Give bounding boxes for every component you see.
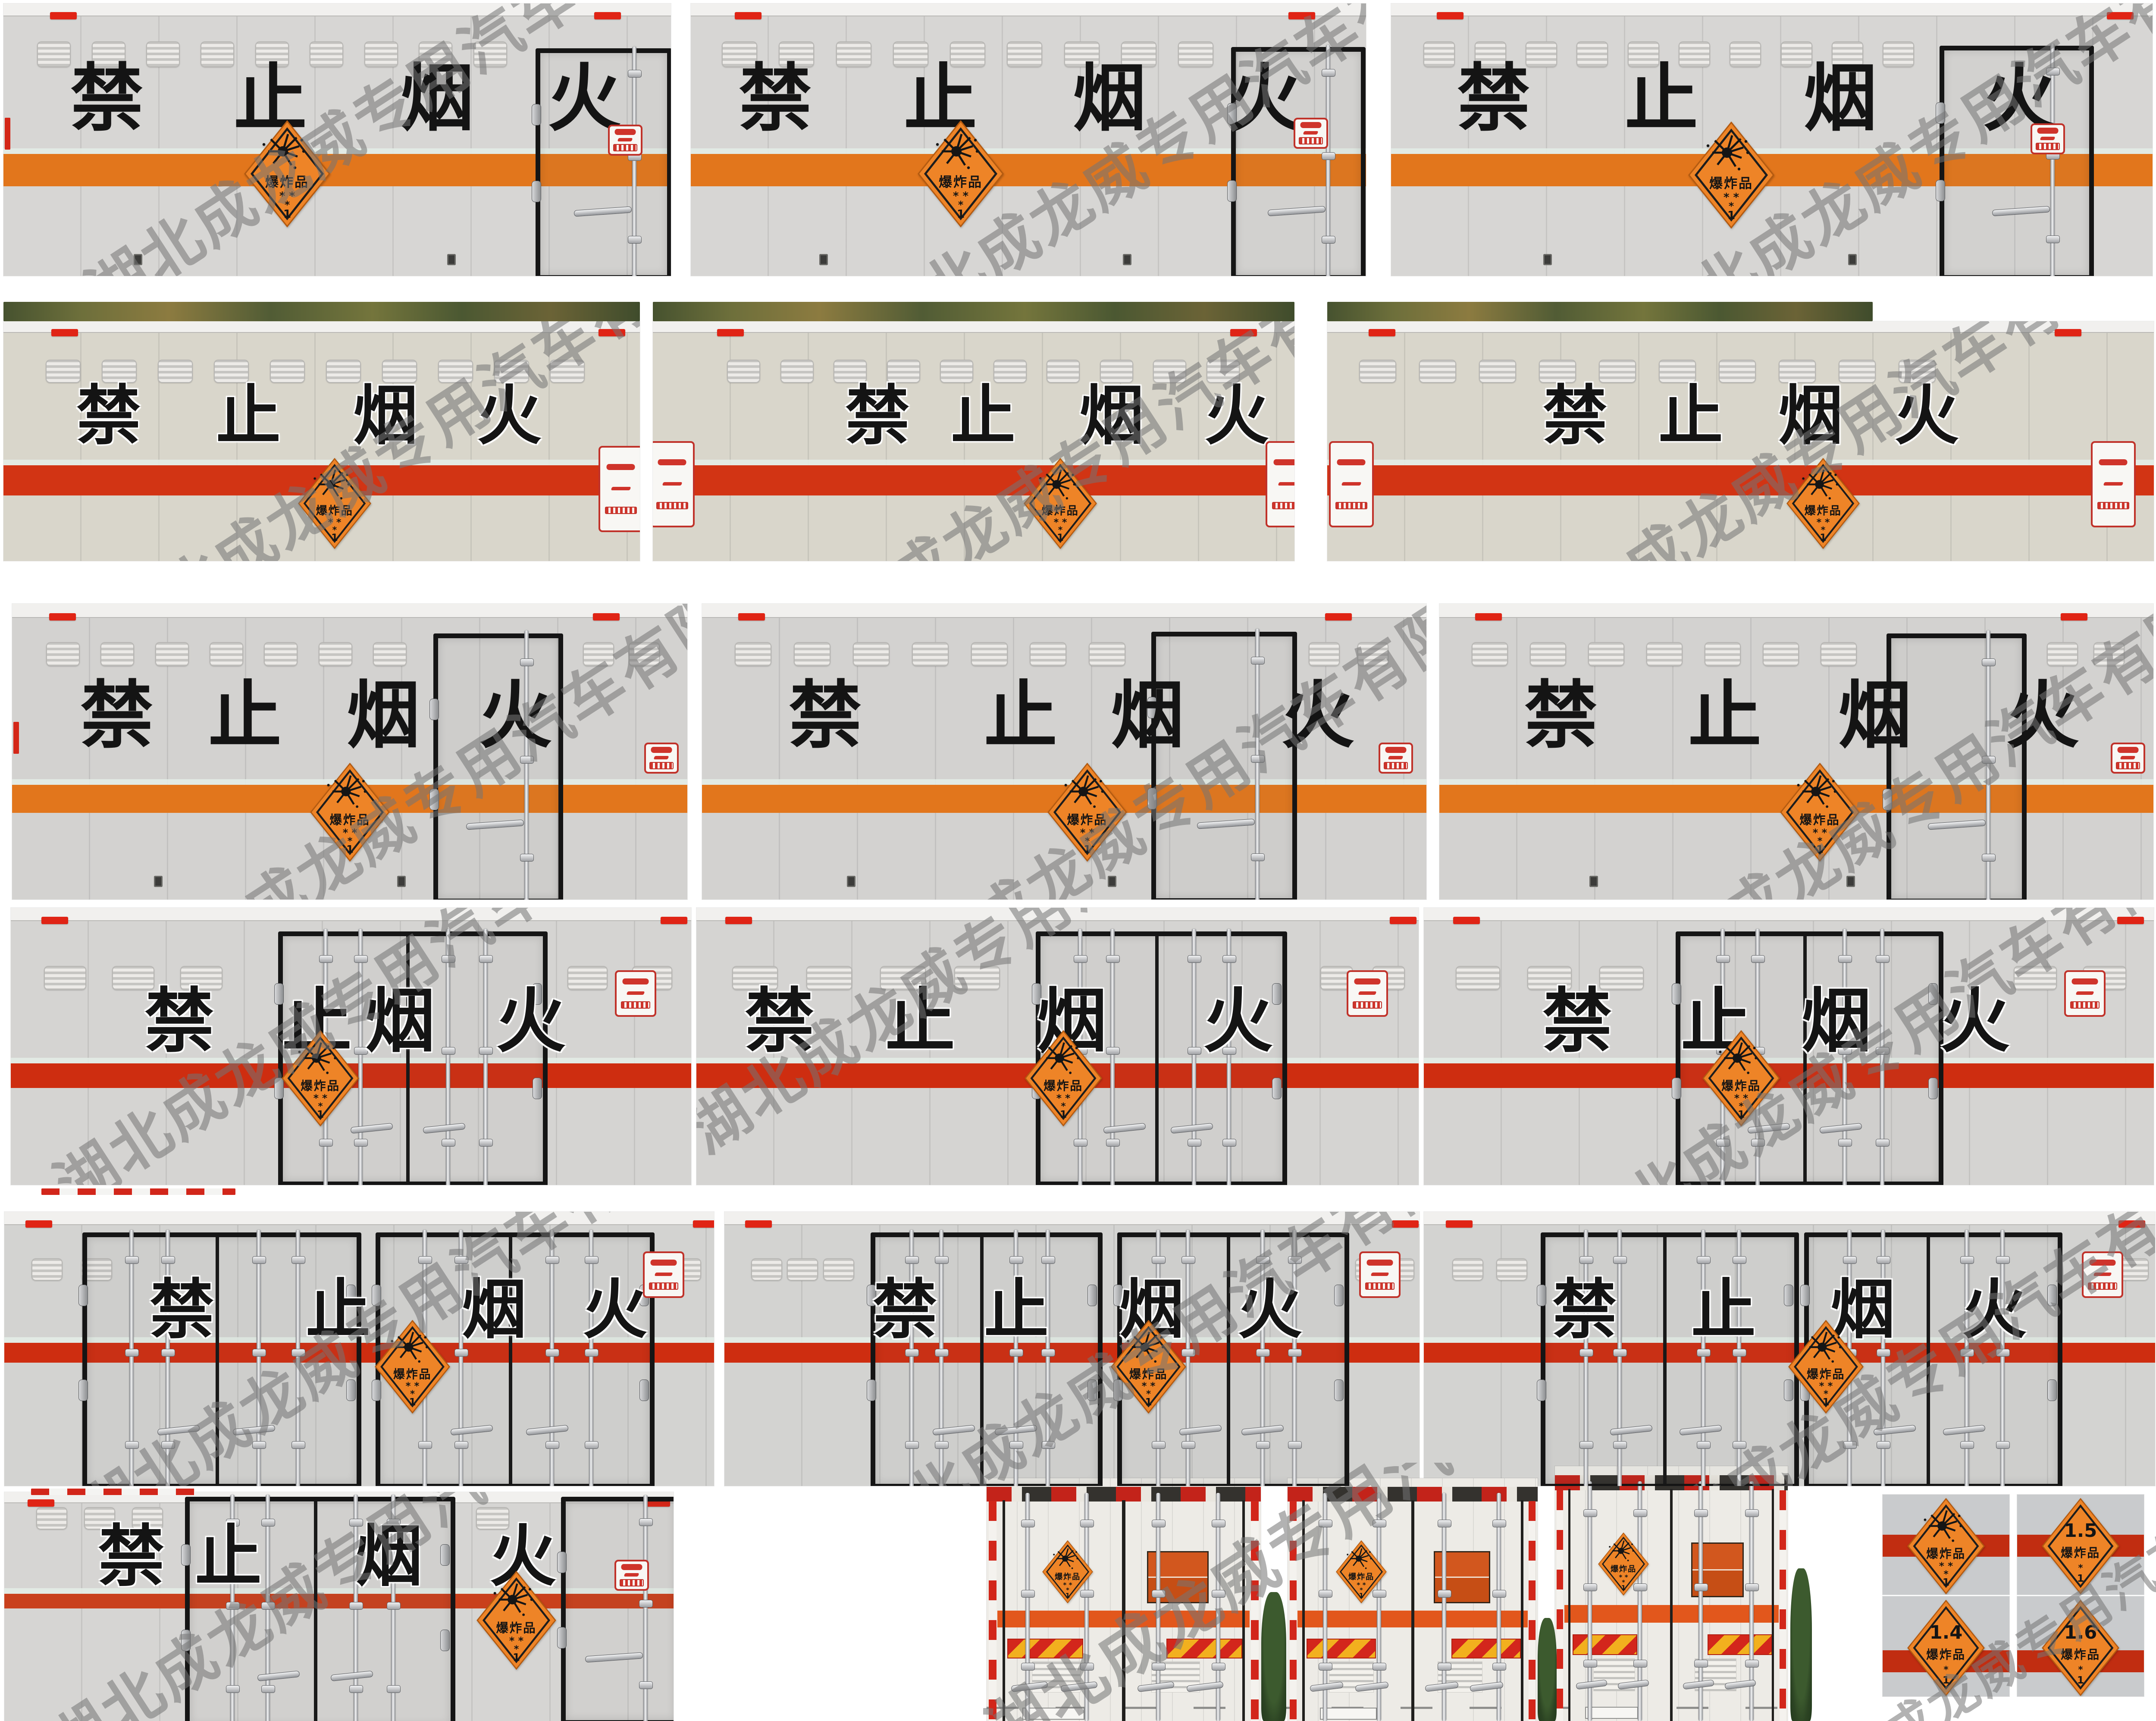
door-frame-line — [1568, 1489, 1570, 1721]
louver-vent — [583, 642, 614, 666]
rod-keeper-bracket — [935, 1256, 949, 1264]
edge-reflective-tape — [1251, 1501, 1259, 1721]
marker-light — [717, 329, 744, 336]
rod-keeper-bracket — [1080, 1520, 1094, 1527]
door-handle — [1943, 1425, 1985, 1436]
placard-sample: 1.6爆炸品*1 — [2017, 1596, 2144, 1696]
floor-latch — [1846, 876, 1855, 887]
explosive-placard: 爆炸品* **1 — [476, 1571, 556, 1670]
explosive-placard: 爆炸品* **1 — [1598, 1533, 1649, 1596]
no-fire-text-char: 止 — [216, 384, 281, 448]
rod-keeper-bracket — [1373, 1520, 1386, 1527]
placard-text: 1 — [2077, 1572, 2084, 1584]
placard-text: 1 — [1823, 1397, 1830, 1408]
door-hinge — [1800, 1285, 1810, 1306]
hazard-stripe — [653, 465, 1294, 495]
brand-logo-icon — [2116, 747, 2140, 753]
rod-keeper-bracket — [1212, 1520, 1225, 1527]
reflective-tape — [31, 1489, 195, 1495]
rod-keeper-bracket — [349, 1685, 363, 1693]
explosive-placard-svg: 爆炸品* **1 — [298, 458, 371, 549]
door-hinge — [1272, 1078, 1282, 1099]
placard-text: 1 — [1145, 1397, 1152, 1408]
no-fire-text-char: 烟 — [365, 987, 435, 1056]
brand-logo-icon — [624, 1573, 639, 1577]
placard-text: 1 — [331, 532, 338, 543]
no-fire-text-char: 禁 — [144, 987, 214, 1056]
door-hinge — [78, 1285, 88, 1306]
explosive-placard-svg: 爆炸品* **1 — [310, 763, 390, 862]
rod-keeper-bracket — [1322, 69, 1335, 77]
rod-keeper-bracket — [628, 236, 642, 244]
door-hinge — [639, 1379, 649, 1401]
brand-badge — [644, 743, 679, 774]
brand-emblem-icon — [1335, 502, 1367, 509]
door-handle — [526, 1425, 568, 1436]
brand-emblem-icon — [2036, 143, 2060, 150]
rod-keeper-bracket — [1716, 1139, 1730, 1147]
no-fire-text-char: 止 — [984, 679, 1057, 752]
louver-vent — [100, 642, 134, 666]
rod-keeper-bracket — [585, 1256, 599, 1264]
cargo-door — [561, 1497, 674, 1721]
floor-latch — [154, 876, 163, 887]
placard-text: 1 — [283, 208, 291, 221]
no-fire-text-char: 禁 — [76, 384, 141, 448]
brand-badge — [615, 970, 656, 1017]
truck-box-panel: 禁止烟火爆炸品* **1湖北成龙威专用汽车有限公司 — [1424, 908, 2154, 1185]
explosive-placard-svg: 爆炸品* **1 — [1688, 122, 1774, 229]
explosive-placard: 爆炸品* **1 — [1025, 1030, 1102, 1126]
louver-vent — [629, 642, 660, 666]
louver-vent — [794, 642, 830, 666]
explosive-placard: 爆炸品* **1 — [1111, 1320, 1186, 1414]
louver-vent — [201, 41, 234, 67]
brand-emblem-icon — [656, 502, 688, 509]
placard-text: 1 — [957, 208, 965, 221]
rod-keeper-bracket — [1982, 658, 1996, 666]
rod-keeper-bracket — [1106, 1139, 1120, 1147]
rod-keeper-bracket — [935, 1441, 949, 1449]
door-frame-line — [1122, 1500, 1125, 1721]
louver-vent — [373, 642, 407, 666]
no-fire-text-char: 止 — [195, 1523, 262, 1590]
no-fire-text-char: 禁 — [1542, 987, 1612, 1056]
rod-keeper-bracket — [226, 1602, 240, 1610]
louver-vent — [37, 41, 71, 67]
door-hinge — [867, 1379, 876, 1401]
brand-logo-icon — [1341, 482, 1362, 486]
placard-text: 爆炸品 — [1055, 1572, 1081, 1582]
brand-logo-icon — [611, 487, 631, 490]
rod-keeper-bracket — [1021, 1520, 1035, 1527]
placard-text: 1 — [346, 843, 354, 856]
placard-text: 1 — [1943, 1674, 1949, 1686]
explosive-placard: 爆炸品* **1 — [1907, 1498, 1985, 1594]
rod-keeper-bracket — [545, 1349, 559, 1357]
rod-keeper-bracket — [1152, 1520, 1166, 1527]
door-hinge — [1147, 788, 1157, 809]
louver-vent — [1472, 642, 1508, 666]
rod-keeper-bracket — [1188, 1047, 1201, 1055]
rod-keeper-bracket — [442, 1139, 455, 1147]
rod-keeper-bracket — [387, 1602, 401, 1610]
rod-keeper-bracket — [1876, 1047, 1890, 1055]
door-hinge — [1936, 102, 1945, 124]
rod-keeper-bracket — [1877, 1256, 1890, 1264]
rod-keeper-bracket — [1373, 1663, 1386, 1671]
placard-sample: 爆炸品* **1 — [1883, 1495, 2009, 1595]
truck-box-panel: 禁止烟火爆炸品* **1湖北成龙威专用汽车有限公司 — [1327, 321, 2154, 561]
louver-vent — [1030, 642, 1066, 666]
brand-logo-icon — [1388, 756, 1404, 759]
rod-keeper-bracket — [1438, 1663, 1451, 1671]
floor-latch — [847, 876, 856, 887]
placard-text: 1 — [1060, 1108, 1067, 1120]
floor-latch — [1123, 254, 1131, 265]
no-fire-text-char: 烟 — [1111, 679, 1184, 752]
cargo-door — [82, 1232, 361, 1486]
no-fire-text-char: 烟 — [462, 1278, 526, 1342]
placard-text: 爆炸品 — [301, 1078, 340, 1093]
louver-vent — [46, 360, 81, 383]
brand-logo-icon — [605, 464, 636, 470]
door-hinge — [181, 1544, 191, 1566]
brand-emblem-icon — [605, 507, 636, 514]
truck-rear-view: 爆炸品* **1 — [987, 1478, 1261, 1721]
brand-badge — [1329, 441, 1374, 527]
placard-text: 爆炸品 — [496, 1621, 536, 1635]
door-handle — [1873, 1425, 1916, 1436]
louver-vent — [1419, 360, 1456, 383]
roof-edge — [1439, 604, 2153, 618]
brand-logo-icon — [1299, 122, 1323, 128]
louver-vent — [438, 360, 473, 383]
no-fire-text-char: 止 — [1691, 1278, 1756, 1342]
rod-keeper-bracket — [1009, 1441, 1023, 1449]
brand-badge — [2064, 970, 2106, 1017]
ground-line — [987, 1707, 1789, 1709]
placard-text: 1.5 — [2064, 1520, 2097, 1542]
louver-vent — [1646, 642, 1683, 666]
rod-keeper-bracket — [1041, 1441, 1055, 1449]
rod-keeper-bracket — [520, 658, 534, 666]
louver-vent — [1588, 642, 1624, 666]
explosive-placard: 爆炸品* **1 — [310, 763, 390, 862]
door-handle — [1819, 1123, 1862, 1134]
explosive-placard-svg: 爆炸品* **1 — [918, 120, 1004, 227]
no-fire-text-char: 火 — [583, 1278, 647, 1342]
marker-light — [28, 1499, 54, 1507]
truck-box-panel: 禁止烟火爆炸品* **1湖北成龙威专用汽车有限公司 — [653, 321, 1294, 561]
no-fire-text-char: 火 — [1940, 987, 2010, 1056]
placard-text: 1 — [1057, 532, 1063, 543]
no-fire-text-char: 火 — [479, 679, 552, 752]
rod-keeper-bracket — [1106, 955, 1120, 963]
cargo-door — [871, 1232, 1103, 1486]
brand-emblem-icon — [2088, 1282, 2117, 1290]
no-fire-text-char: 禁 — [845, 384, 910, 448]
brand-logo-icon — [620, 1564, 644, 1570]
rod-keeper-bracket — [1438, 1590, 1451, 1598]
louver-vent — [1763, 642, 1799, 666]
roof-edge — [4, 1212, 714, 1225]
marker-light — [50, 12, 77, 19]
louver-vent — [1576, 41, 1608, 67]
louver-vent — [1719, 360, 1756, 383]
rod-keeper-bracket — [545, 1256, 559, 1264]
marker-light — [725, 917, 752, 924]
rod-keeper-bracket — [1579, 1441, 1593, 1449]
rod-keeper-bracket — [905, 1256, 919, 1264]
door-split-line — [1927, 1237, 1930, 1484]
louver-vent — [954, 966, 1000, 990]
roof-edge — [696, 908, 1419, 921]
brand-logo-icon — [1366, 1260, 1394, 1266]
brand-badge — [2031, 123, 2065, 154]
door-frame-line — [1670, 1489, 1673, 1721]
no-fire-text-char: 烟 — [401, 62, 474, 135]
rod-keeper-bracket — [520, 854, 534, 862]
no-fire-text-char: 禁 — [1524, 679, 1598, 752]
rod-keeper-bracket — [1438, 1520, 1451, 1527]
door-handle — [1679, 1425, 1722, 1436]
rod-keeper-bracket — [1583, 1660, 1597, 1668]
brand-logo-icon — [617, 138, 633, 141]
no-fire-text-char: 烟 — [356, 1523, 423, 1590]
rod-keeper-bracket — [1996, 1441, 2010, 1449]
door-hinge — [1537, 1379, 1546, 1401]
rear-views-group: 爆炸品* **1爆炸品* **1爆炸品* **1湖北成龙威专用汽车有限公司 — [983, 1463, 1815, 1721]
door-split-line — [1227, 1237, 1230, 1484]
rod-keeper-bracket — [1579, 1349, 1593, 1357]
brand-logo-icon — [1370, 1273, 1389, 1276]
rod-keeper-bracket — [161, 1349, 175, 1357]
brand-logo-icon — [2036, 128, 2060, 134]
rod-keeper-bracket — [418, 1441, 432, 1449]
explosive-placard-svg: 1.4爆炸品*1 — [1907, 1600, 1985, 1696]
floor-latch — [1543, 254, 1552, 265]
explosive-placard: 爆炸品* **1 — [1336, 1540, 1387, 1603]
marker-light — [2118, 1220, 2145, 1228]
placard-text: 爆炸品 — [1067, 812, 1107, 827]
explosive-placard: 爆炸品* **1 — [244, 120, 330, 227]
door-hinge — [2047, 1285, 2057, 1306]
placard-text: 爆炸品 — [1926, 1546, 1966, 1561]
floor-latch — [819, 254, 828, 265]
louver-vent — [1452, 1258, 1483, 1281]
door-hinge — [1087, 1285, 1097, 1306]
door-hinge — [181, 1630, 191, 1651]
door-hinge — [532, 181, 541, 202]
door-hinge — [440, 1630, 450, 1651]
brand-emblem-icon — [613, 144, 637, 151]
door-hinge — [1672, 1078, 1681, 1099]
floor-latch — [1589, 876, 1598, 887]
placard-text: 爆炸品 — [1721, 1078, 1761, 1093]
truck-box-panel: 禁止烟火爆炸品* **1湖北成龙威专用汽车有限公司 — [4, 1212, 714, 1486]
no-fire-text-char: 禁 — [1552, 1278, 1617, 1342]
rod-keeper-bracket — [1716, 955, 1730, 963]
shrub — [1538, 1618, 1557, 1721]
no-fire-text-char: 烟 — [1838, 679, 1912, 752]
louver-vent — [780, 360, 814, 383]
rod-keeper-bracket — [442, 1047, 455, 1055]
louver-vent — [473, 41, 507, 67]
door-hinge — [532, 104, 541, 125]
photo-collage-page: 禁止烟火爆炸品* **1湖北成龙威专用汽车有限公司禁止烟火爆炸品* **1湖北成… — [0, 0, 2156, 1721]
door-hinge — [1334, 1379, 1344, 1401]
truck-box-panel: 禁止烟火爆炸品* **1湖北成龙威专用汽车有限公司 — [3, 3, 671, 276]
door-hinge — [533, 1078, 542, 1099]
door-handle — [257, 1671, 300, 1681]
placard-text: 爆炸品 — [1042, 505, 1079, 517]
rod-keeper-bracket — [1745, 1509, 1759, 1517]
rod-keeper-bracket — [1074, 1139, 1087, 1147]
rod-keeper-bracket — [585, 1441, 599, 1449]
no-fire-text-char: 止 — [1625, 62, 1698, 135]
brand-logo-icon — [1278, 482, 1294, 486]
brand-logo-icon — [649, 1260, 678, 1266]
truck-rear-view: 爆炸品* **1 — [1555, 1466, 1788, 1721]
rod-keeper-bracket — [349, 1602, 363, 1610]
explosive-placard: 1.4爆炸品*1 — [1907, 1600, 1985, 1696]
rod-keeper-bracket — [1074, 955, 1087, 963]
rod-keeper-bracket — [628, 70, 642, 78]
chevron-marking — [1573, 1634, 1637, 1655]
rod-keeper-bracket — [1288, 1441, 1302, 1449]
placard-text: 爆炸品 — [1044, 1078, 1083, 1093]
rod-keeper-bracket — [125, 1349, 139, 1357]
rod-keeper-bracket — [1212, 1590, 1225, 1598]
floor-latch — [1108, 876, 1116, 887]
rod-keeper-bracket — [1982, 756, 1996, 764]
door-hinge — [346, 1379, 356, 1401]
rod-keeper-bracket — [252, 1441, 266, 1449]
door-hinge — [440, 1544, 450, 1566]
marker-light — [49, 613, 76, 621]
placard-text: 爆炸品 — [1799, 812, 1840, 827]
no-fire-text-char: 烟 — [347, 679, 420, 752]
placard-text: 爆炸品 — [2061, 1546, 2100, 1560]
door-handle — [450, 1425, 493, 1436]
trees-background — [1327, 302, 1873, 321]
marker-light — [1453, 917, 1480, 924]
rod-keeper-bracket — [354, 1139, 368, 1147]
louver-vent — [550, 360, 585, 383]
rod-keeper-bracket — [1838, 1139, 1852, 1147]
truck-box-panel: 禁止烟火爆炸品* **1湖北成龙威专用汽车有限公司 — [4, 1492, 674, 1721]
explosive-placard: 爆炸品* **1 — [1780, 763, 1860, 862]
rod-keeper-bracket — [1843, 1441, 1857, 1449]
rod-keeper-bracket — [161, 1441, 175, 1449]
door-handle — [585, 1652, 643, 1662]
brand-logo-icon — [2103, 482, 2124, 486]
explosive-placard-svg: 爆炸品* **1 — [282, 1030, 359, 1126]
truck-rear-view: 爆炸品* **1 — [1288, 1478, 1538, 1721]
louver-vent — [158, 360, 193, 383]
rod-keeper-bracket — [1009, 1349, 1023, 1357]
louver-vent — [1730, 41, 1761, 67]
rod-keeper-bracket — [479, 1139, 493, 1147]
rod-keeper-bracket — [418, 1256, 432, 1264]
rod-keeper-bracket — [1492, 1590, 1506, 1598]
truck-box-panel: 禁止烟火爆炸品* **1湖北成龙威专用汽车有限公司 — [12, 604, 687, 900]
door-hinge — [372, 1285, 381, 1306]
rod-keeper-bracket — [1322, 152, 1335, 160]
roof-edge — [11, 908, 691, 921]
rod-keeper-bracket — [1222, 1139, 1236, 1147]
brand-badge — [599, 446, 640, 532]
marker-light — [594, 12, 621, 19]
rod-keeper-bracket — [1319, 1520, 1332, 1527]
placard-text: 1.4 — [1930, 1622, 1962, 1643]
explosive-placard: 爆炸品* **1 — [282, 1030, 359, 1126]
brand-badge — [1359, 1251, 1401, 1298]
explosive-placard-svg: 1.5爆炸品*1 — [2042, 1498, 2119, 1594]
brand-emblem-icon — [649, 762, 674, 769]
louver-vent — [31, 1258, 63, 1281]
louver-vent — [1089, 642, 1125, 666]
door-handle — [1268, 206, 1326, 216]
rod-keeper-bracket — [1745, 1660, 1759, 1668]
placard-text: 爆炸品 — [393, 1368, 432, 1381]
placard-text: 爆炸品 — [1129, 1368, 1168, 1381]
rod-keeper-bracket — [1322, 236, 1335, 244]
truck-box-panel: 禁止烟火爆炸品* **1湖北成龙威专用汽车有限公司 — [3, 321, 640, 561]
placard-text: 爆炸品 — [316, 505, 354, 517]
marker-light — [1475, 613, 1502, 621]
rod-keeper-bracket — [479, 955, 493, 963]
door-hinge — [1883, 789, 1892, 810]
floor-latch — [447, 254, 456, 265]
marker-light — [1390, 917, 1416, 924]
louver-vent — [853, 642, 890, 666]
marker-light — [1392, 1220, 1419, 1228]
brand-emblem-icon — [1272, 502, 1294, 509]
rod-keeper-bracket — [1745, 1583, 1759, 1591]
brand-badge — [2082, 1251, 2123, 1298]
roof-edge — [1327, 321, 2154, 333]
no-fire-text-char: 火 — [477, 384, 542, 448]
louver-vent — [36, 1507, 67, 1530]
door-handle — [1928, 819, 1986, 830]
door-handle — [1992, 206, 2050, 216]
door-handle — [1197, 818, 1255, 829]
brand-logo-icon — [657, 459, 688, 465]
explosive-placard-svg: 爆炸品* **1 — [1024, 458, 1097, 549]
rod-keeper-bracket — [1188, 1139, 1201, 1147]
placard-text: 1 — [409, 1397, 416, 1408]
explosive-placard: 爆炸品* **1 — [298, 458, 371, 549]
rod-keeper-bracket — [1694, 1583, 1708, 1591]
explosive-placard: 爆炸品* **1 — [1788, 1320, 1864, 1414]
rod-keeper-bracket — [1733, 1349, 1746, 1357]
rod-keeper-bracket — [252, 1349, 266, 1357]
brand-badge — [1347, 970, 1388, 1017]
rod-keeper-bracket — [1877, 1349, 1890, 1357]
explosive-placard-svg: 爆炸品* **1 — [375, 1320, 450, 1414]
no-fire-text-char: 止 — [951, 384, 1015, 448]
rod-keeper-bracket — [261, 1602, 275, 1610]
rod-keeper-bracket — [1152, 1590, 1166, 1598]
marker-light — [41, 917, 68, 924]
explosive-placard-svg: 爆炸品* **1 — [476, 1571, 556, 1670]
door-split-line — [1663, 1237, 1667, 1484]
rod-keeper-bracket — [1021, 1590, 1035, 1598]
brand-logo-icon — [662, 482, 683, 486]
brand-emblem-icon — [2070, 1001, 2099, 1009]
